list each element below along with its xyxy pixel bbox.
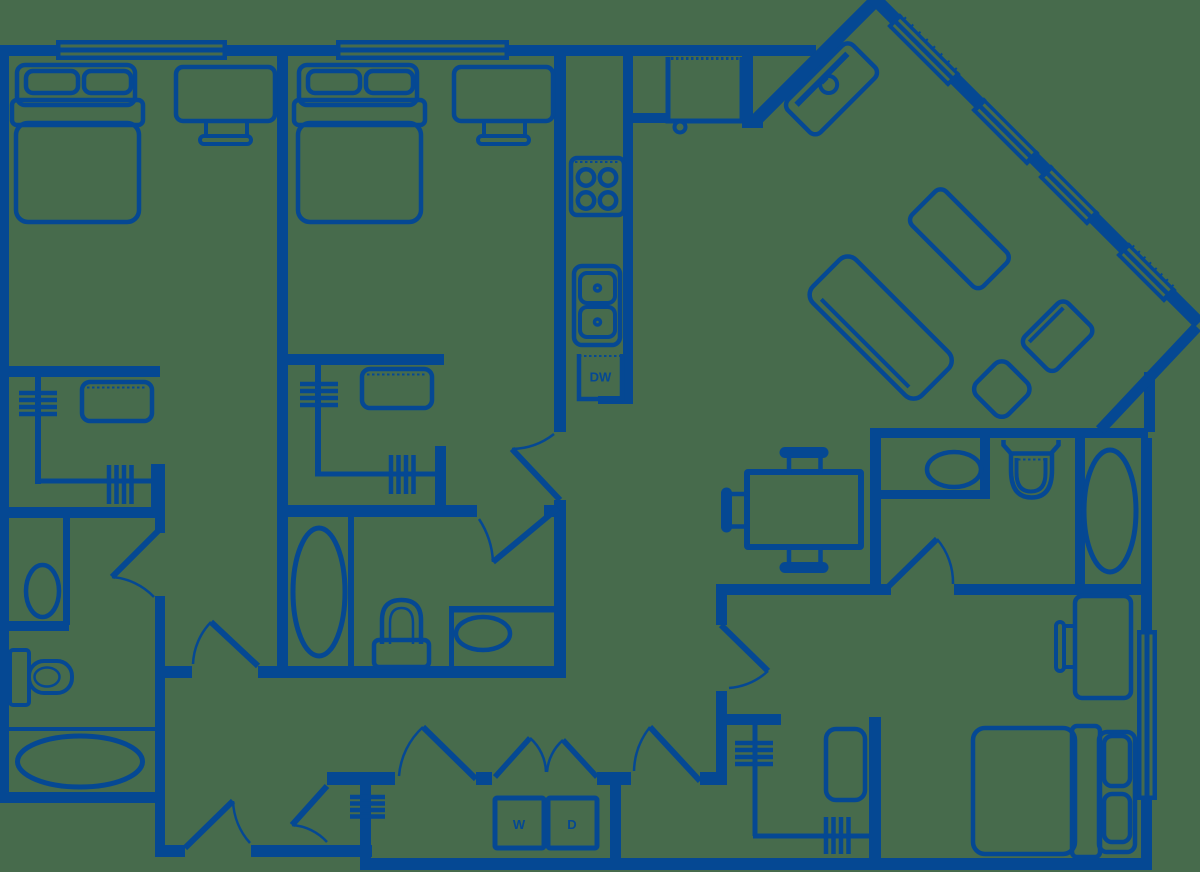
svg-text:W: W bbox=[513, 817, 526, 832]
svg-text:DW: DW bbox=[590, 370, 612, 385]
svg-text:D: D bbox=[567, 817, 576, 832]
